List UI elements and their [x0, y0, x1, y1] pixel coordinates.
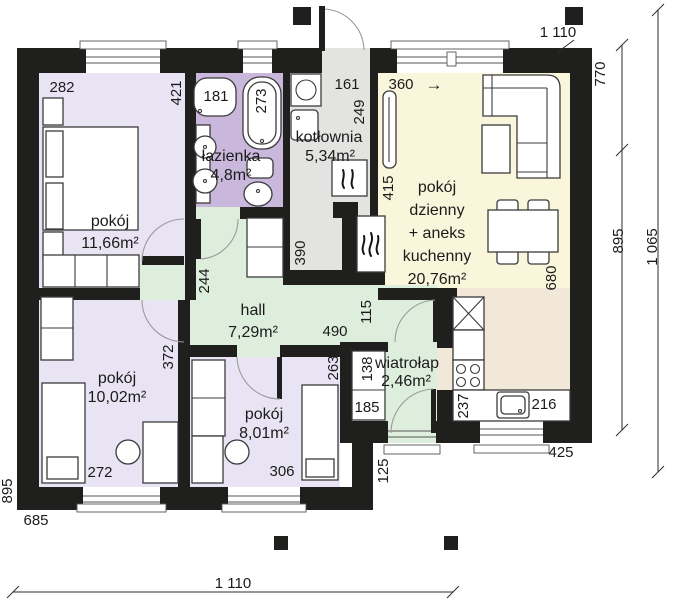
- bed-pillow: [47, 457, 78, 479]
- room-label-pokoj-2: pokój: [98, 370, 136, 387]
- room-area-pokoj-3: 8,01m²: [239, 425, 289, 442]
- wall-bathroom-south: [240, 207, 290, 219]
- dim-185: 185: [354, 399, 379, 416]
- room-label-salon-1: pokój: [418, 179, 456, 196]
- dim-273: 273: [253, 88, 270, 113]
- room-label-lazienka: łazienka: [202, 148, 261, 165]
- dim-161: 161: [334, 76, 359, 93]
- chimney-marker: [444, 536, 458, 550]
- bed-pillow: [46, 183, 63, 229]
- floor-plan-canvas: 282 421 181 273 161 249 360 → 415 390 24…: [0, 0, 674, 600]
- wall-pokoj3-top-west: [178, 345, 237, 357]
- door-leaf-entrance: [431, 389, 436, 433]
- desk: [192, 436, 223, 483]
- window-mullion: [447, 52, 456, 66]
- door-leaf-pokoj2: [180, 300, 185, 342]
- bed-pillow: [46, 131, 63, 177]
- room-area-hall: 7,29m²: [228, 324, 278, 341]
- door-leaf-pokoj1: [142, 256, 184, 265]
- wall-bathroom-east: [283, 73, 290, 285]
- dim-left-895: 895: [0, 478, 16, 503]
- desk-chair: [116, 440, 140, 464]
- dim-282: 282: [49, 79, 74, 96]
- window-sill: [77, 504, 166, 512]
- dim-bottom-1110: 1 110: [215, 575, 251, 592]
- desk-chair: [225, 440, 249, 464]
- dim-390: 390: [292, 240, 309, 265]
- room-label-wiatrolap: wiatrołap: [374, 355, 439, 372]
- window-sill: [222, 504, 306, 512]
- wall-pokoj3-top-east: [280, 345, 340, 357]
- room-label-salon-2: dzienny: [409, 202, 464, 219]
- dim-right-770: 770: [592, 61, 609, 86]
- window-kitchen: [480, 421, 543, 443]
- boiler: [332, 160, 367, 196]
- dim-right-1065: 1 065: [644, 228, 661, 266]
- floor-plan: 282 421 181 273 161 249 360 → 415 390 24…: [0, 0, 674, 600]
- window-sill: [80, 41, 166, 49]
- door-opening-kotlownia-exterior: [322, 48, 370, 73]
- door-leaf-kotlownia-exterior: [319, 6, 325, 51]
- dim-237: 237: [455, 393, 472, 418]
- chimney-marker: [274, 536, 288, 550]
- wall-pokoj1-pokoj2: [17, 288, 140, 300]
- wall-exterior-right: [570, 48, 592, 443]
- dim-360: 360: [388, 76, 413, 93]
- entrance-step: [384, 445, 440, 454]
- room-label-pokoj-3: pokój: [245, 406, 283, 423]
- dim-bottom-425: 425: [548, 444, 573, 461]
- nightstand: [43, 98, 63, 125]
- door-leaf-lazienka: [196, 219, 201, 259]
- wall-exterior-top-left: [17, 48, 322, 73]
- dim-372: 372: [160, 344, 177, 369]
- room-label-kotlownia: kotłownia: [296, 129, 363, 146]
- dim-138: 138: [359, 356, 376, 381]
- dim-421: 421: [168, 80, 185, 105]
- dim-249: 249: [351, 99, 368, 124]
- dim-step-125: 125: [375, 458, 392, 483]
- kitchen-cabinet: [453, 330, 484, 360]
- dim-244: 244: [196, 268, 213, 293]
- window-pokoj1: [86, 48, 160, 73]
- dim-right-895: 895: [610, 228, 627, 253]
- nightstand: [43, 232, 63, 258]
- room-label-hall: hall: [241, 302, 266, 319]
- wall-kotlownia-east: [370, 73, 378, 217]
- dim-490: 490: [322, 323, 347, 340]
- door-opening-entrance: [388, 421, 436, 443]
- arrow-right-icon: →: [426, 75, 443, 94]
- wall-exterior-bottom: [17, 487, 373, 510]
- door-opening-lazienka: [196, 207, 240, 219]
- chimney-marker: [565, 7, 583, 25]
- door-opening-pokoj3: [237, 345, 280, 357]
- dim-415: 415: [380, 175, 397, 200]
- room-area-lazienka: 4,8m²: [211, 167, 253, 184]
- door-arc-kotlownia-exterior: [325, 9, 364, 50]
- window-sill: [474, 445, 549, 453]
- dim-181: 181: [203, 88, 228, 105]
- door-opening-wiatrolap-hall: [388, 342, 436, 352]
- room-area-wiatrolap: 2,46m²: [381, 373, 431, 390]
- dining-table: [488, 210, 558, 252]
- chimney-marker: [293, 7, 311, 25]
- room-label-salon-4: kuchenny: [403, 248, 472, 265]
- room-area-kotlownia: 5,34m²: [305, 148, 355, 165]
- desk: [143, 422, 178, 483]
- room-area-pokoj-2: 10,02m²: [88, 389, 147, 406]
- toilet-bowl: [244, 182, 272, 206]
- window-lazienka: [243, 48, 272, 73]
- floor-hall-vestibule: [140, 264, 185, 300]
- coffee-table: [482, 125, 510, 173]
- room-area-pokoj-1: 11,66m²: [81, 235, 139, 252]
- room-label-pokoj-1: pokój: [91, 213, 129, 230]
- room-area-salon: 20,76m²: [408, 271, 467, 288]
- dim-263: 263: [325, 355, 342, 380]
- door-leaf-wiatrolap-hall: [433, 300, 438, 342]
- dim-680: 680: [543, 265, 560, 290]
- wardrobe: [43, 255, 139, 287]
- dim-bottom-685: 685: [23, 512, 48, 529]
- dim-272: 272: [87, 464, 112, 481]
- window-sill: [391, 41, 509, 49]
- dim-top-1110: 1 110: [540, 24, 576, 41]
- door-leaf-pokoj3: [277, 357, 282, 399]
- bed-pillow: [306, 459, 334, 477]
- dim-306: 306: [269, 463, 294, 480]
- window-sill: [238, 41, 277, 49]
- wall-exterior-left: [17, 48, 39, 510]
- dim-216: 216: [531, 396, 556, 413]
- dim-115: 115: [358, 300, 375, 324]
- room-label-salon-3: + aneks: [409, 225, 465, 242]
